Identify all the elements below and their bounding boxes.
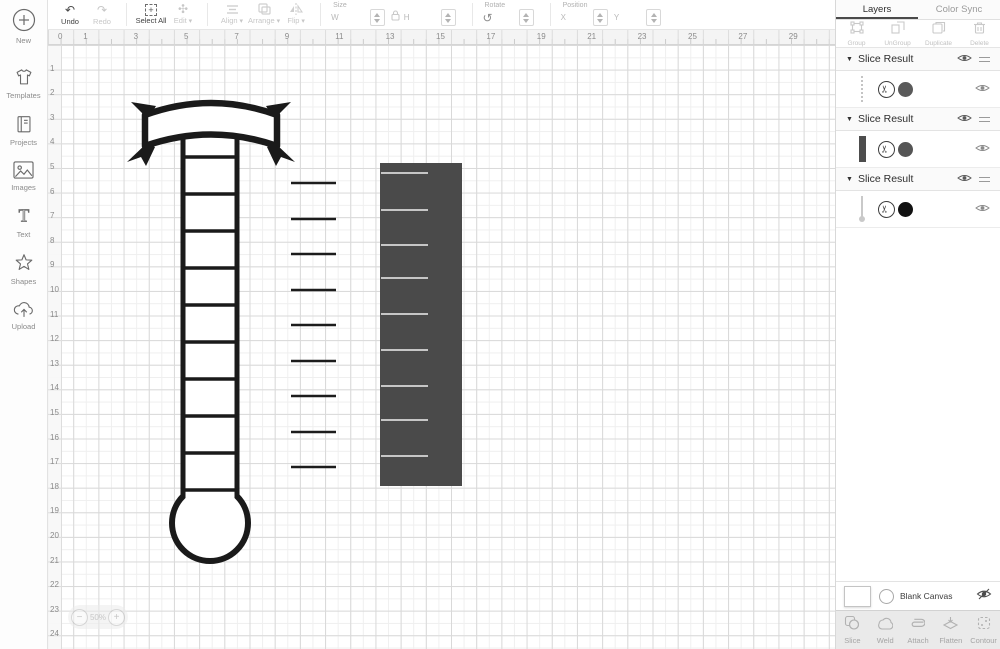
- flatten-icon: [942, 616, 959, 635]
- bottom-action-label: Contour: [970, 636, 997, 645]
- layer-row[interactable]: ✂: [836, 131, 1000, 168]
- lock-icon[interactable]: [391, 8, 400, 26]
- h-ruler-number: 23: [638, 32, 647, 41]
- v-ruler-number: 7: [50, 211, 54, 220]
- select-all-icon: +: [145, 4, 157, 16]
- bottom-action-label: Attach: [907, 636, 928, 645]
- action-label: Delete: [970, 40, 989, 47]
- h-ruler-number: 29: [789, 32, 798, 41]
- layer-group-title: Slice Result: [858, 53, 957, 65]
- group-menu-icon[interactable]: [979, 57, 990, 62]
- images-icon: [12, 160, 35, 180]
- slice-icon: [844, 615, 860, 635]
- h-ruler-number: 5: [184, 32, 188, 41]
- edit-label: Edit: [174, 17, 192, 26]
- align-dropdown[interactable]: Align: [216, 0, 248, 30]
- delete-icon: [973, 21, 986, 39]
- toolbar-divider: [550, 3, 551, 26]
- toolbar-divider: [207, 3, 208, 26]
- h-ruler-number: 9: [285, 32, 289, 41]
- zoom-control: − 50% +: [68, 605, 128, 629]
- select-all-label: Select All: [136, 17, 167, 25]
- group-visibility-eye-icon[interactable]: [957, 110, 972, 128]
- position-label: Position: [563, 2, 588, 9]
- contour-button[interactable]: Contour: [967, 611, 1000, 649]
- toolbar-divider: [320, 3, 321, 26]
- y-stepper[interactable]: [646, 9, 661, 26]
- boolean-actions-bar: SliceWeldAttachFlattenContour: [836, 610, 1000, 649]
- sidebar-item-label: Projects: [10, 138, 37, 147]
- v-ruler-number: 13: [50, 359, 59, 368]
- collapse-triangle-icon[interactable]: ▼: [846, 116, 853, 123]
- contour-icon: [977, 616, 991, 635]
- layers-panel: Layers Color Sync GroupUnGroupDuplicateD…: [835, 0, 1000, 649]
- h-ruler-number: 7: [234, 32, 238, 41]
- x-field-label: X: [561, 13, 566, 22]
- group-visibility-eye-icon[interactable]: [957, 170, 972, 188]
- templates-icon: [12, 66, 36, 88]
- design-space-app: ↶ Undo ↷ Redo + Select All ✣ Edit Align: [0, 0, 1000, 649]
- layer-visibility-eye-icon[interactable]: [975, 140, 990, 158]
- blank-canvas-row: Blank Canvas: [836, 581, 1000, 610]
- left-sidebar: NewTemplatesProjectsImagesTTextShapesUpl…: [0, 0, 48, 649]
- v-ruler-number: 19: [50, 506, 59, 515]
- slice-button[interactable]: Slice: [836, 611, 869, 649]
- h-ruler-number: 1: [83, 32, 87, 41]
- bottom-action-label: Slice: [844, 636, 860, 645]
- vertical-ruler: 123456789101112131415161718192021222324: [48, 45, 62, 649]
- text-icon: T: [13, 205, 35, 227]
- canvas-color-swatch[interactable]: [844, 586, 871, 607]
- bottom-action-label: Weld: [877, 636, 894, 645]
- sidebar-item-templates[interactable]: Templates: [0, 59, 47, 106]
- sidebar-item-label: Shapes: [11, 277, 36, 286]
- v-ruler-number: 18: [50, 482, 59, 491]
- v-ruler-number: 23: [50, 605, 59, 614]
- arrange-icon: [258, 3, 271, 17]
- h-ruler-number: 0: [58, 32, 62, 41]
- new-icon: [11, 7, 37, 33]
- v-ruler-number: 8: [50, 236, 54, 245]
- layer-group-title: Slice Result: [858, 173, 957, 185]
- layer-group-header[interactable]: ▼Slice Result: [836, 48, 1000, 71]
- v-ruler-number: 16: [50, 433, 59, 442]
- flip-label: Flip: [287, 17, 305, 26]
- h-ruler-number: 11: [335, 32, 343, 41]
- h-ruler-number: 13: [386, 32, 395, 41]
- sidebar-item-label: Images: [11, 183, 36, 192]
- v-ruler-number: 21: [50, 556, 59, 565]
- layer-group-header[interactable]: ▼Slice Result: [836, 168, 1000, 191]
- v-ruler-number: 5: [50, 162, 54, 171]
- svg-text:T: T: [18, 206, 29, 226]
- group-button[interactable]: Group: [836, 20, 877, 47]
- collapse-triangle-icon[interactable]: ▼: [846, 56, 853, 63]
- h-ruler-number: 17: [486, 32, 495, 41]
- size-group: Size W H: [323, 0, 469, 29]
- v-ruler-number: 20: [50, 531, 59, 540]
- flip-icon: [289, 3, 303, 17]
- tab-color-sync[interactable]: Color Sync: [918, 0, 1000, 19]
- layer-thumbnail: [850, 136, 874, 162]
- cut-linetype-icon[interactable]: ✂: [878, 81, 895, 98]
- layer-color-dot[interactable]: [898, 202, 913, 217]
- delete-button[interactable]: Delete: [959, 20, 1000, 47]
- arrange-label: Arrange: [248, 17, 280, 26]
- weld-button[interactable]: Weld: [869, 611, 902, 649]
- design-canvas[interactable]: 123456789101112131415161718192021222324 …: [48, 45, 835, 649]
- blank-canvas-label: Blank Canvas: [900, 591, 976, 601]
- undo-button[interactable]: ↶ Undo: [54, 0, 86, 30]
- layer-thumbnail: [850, 76, 874, 102]
- ungroup-icon: [891, 21, 905, 39]
- horizontal-ruler: 01357911131517192123252729: [48, 30, 835, 45]
- canvas-color-picker[interactable]: [879, 589, 894, 604]
- sidebar-item-label: Text: [17, 230, 31, 239]
- x-stepper[interactable]: [593, 9, 608, 26]
- canvas-shapes: [48, 45, 835, 649]
- layer-list: ▼Slice Result✂▼Slice Result✂▼Slice Resul…: [836, 48, 1000, 228]
- redo-label: Redo: [93, 18, 111, 26]
- edit-icon: ✣: [178, 3, 188, 17]
- eye-off-icon[interactable]: [976, 587, 992, 605]
- align-icon: [226, 3, 239, 17]
- weld-icon: [877, 615, 893, 635]
- h-ruler-number: 3: [134, 32, 138, 41]
- cut-linetype-icon[interactable]: ✂: [878, 201, 895, 218]
- width-field-label: W: [331, 13, 339, 22]
- rotate-icon: ↺: [483, 11, 493, 25]
- cut-linetype-icon[interactable]: ✂: [878, 141, 895, 158]
- top-toolbar: ↶ Undo ↷ Redo + Select All ✣ Edit Align: [48, 0, 835, 30]
- v-ruler-number: 10: [50, 285, 59, 294]
- zoom-out-button[interactable]: −: [71, 609, 88, 626]
- projects-icon: [13, 113, 35, 135]
- layer-group-title: Slice Result: [858, 113, 957, 125]
- v-ruler-number: 4: [50, 137, 54, 146]
- sidebar-item-images[interactable]: Images: [0, 153, 47, 198]
- layer-actions-bar: GroupUnGroupDuplicateDelete: [836, 20, 1000, 48]
- ungroup-button[interactable]: UnGroup: [877, 20, 918, 47]
- group-menu-icon[interactable]: [979, 177, 990, 182]
- redo-button[interactable]: ↷ Redo: [86, 0, 118, 30]
- h-ruler-number: 15: [436, 32, 445, 41]
- arrange-dropdown[interactable]: Arrange: [248, 0, 280, 30]
- zoom-level: 50%: [90, 613, 106, 622]
- h-ruler-number: 27: [738, 32, 747, 41]
- panel-tabs: Layers Color Sync: [836, 0, 1000, 20]
- v-ruler-number: 15: [50, 408, 59, 417]
- layer-row[interactable]: ✂: [836, 191, 1000, 228]
- attach-icon: [910, 615, 925, 635]
- v-ruler-number: 22: [50, 580, 59, 589]
- rotate-label: Rotate: [485, 2, 506, 9]
- toolbar-divider: [472, 3, 473, 26]
- zoom-in-button[interactable]: +: [108, 609, 125, 626]
- thermometer-shape[interactable]: [127, 102, 295, 561]
- sidebar-item-projects[interactable]: Projects: [0, 106, 47, 153]
- sidebar-item-label: Upload: [12, 322, 36, 331]
- h-ruler-number: 25: [688, 32, 697, 41]
- action-label: Duplicate: [925, 40, 952, 47]
- v-ruler-number: 14: [50, 383, 59, 392]
- bottom-action-label: Flatten: [939, 636, 962, 645]
- undo-icon: ↶: [65, 4, 75, 18]
- redo-icon: ↷: [97, 4, 107, 18]
- width-stepper[interactable]: [370, 9, 385, 26]
- h-ruler-number: 19: [537, 32, 546, 41]
- layer-visibility-eye-icon[interactable]: [975, 200, 990, 218]
- v-ruler-number: 9: [50, 260, 54, 269]
- rotate-group: Rotate ↺: [475, 0, 548, 29]
- sidebar-item-upload[interactable]: Upload: [0, 292, 47, 337]
- flatten-button[interactable]: Flatten: [934, 611, 967, 649]
- sidebar-item-shapes[interactable]: Shapes: [0, 245, 47, 292]
- sidebar-item-label: Templates: [6, 91, 40, 100]
- action-label: Group: [847, 40, 865, 47]
- select-all-button[interactable]: + Select All: [135, 0, 167, 30]
- layer-row[interactable]: ✂: [836, 71, 1000, 108]
- sidebar-item-new[interactable]: New: [0, 0, 47, 51]
- v-ruler-number: 12: [50, 334, 59, 343]
- group-visibility-eye-icon[interactable]: [957, 50, 972, 68]
- rotate-stepper[interactable]: [519, 9, 534, 26]
- v-ruler-number: 17: [50, 457, 59, 466]
- sidebar-item-text[interactable]: TText: [0, 198, 47, 245]
- v-ruler-number: 6: [50, 187, 54, 196]
- layer-color-dot[interactable]: [898, 82, 913, 97]
- height-field-label: H: [404, 13, 410, 22]
- toolbar-divider: [126, 3, 127, 26]
- layer-thumbnail: [850, 196, 874, 222]
- action-label: UnGroup: [884, 40, 910, 47]
- undo-label: Undo: [61, 18, 79, 26]
- group-icon: [850, 21, 864, 39]
- layer-visibility-eye-icon[interactable]: [975, 80, 990, 98]
- collapse-triangle-icon[interactable]: ▼: [846, 176, 853, 183]
- edit-dropdown[interactable]: ✣ Edit: [167, 0, 199, 30]
- position-group: Position X Y: [553, 0, 676, 29]
- duplicate-button[interactable]: Duplicate: [918, 20, 959, 47]
- duplicate-icon: [932, 21, 946, 39]
- size-label: Size: [333, 2, 347, 9]
- slice-rectangle-shape[interactable]: [380, 163, 462, 486]
- v-ruler-number: 24: [50, 629, 59, 638]
- v-ruler-number: 11: [50, 310, 58, 319]
- shapes-icon: [13, 252, 35, 274]
- v-ruler-number: 1: [50, 64, 54, 73]
- sidebar-item-label: New: [16, 36, 31, 45]
- y-field-label: Y: [614, 13, 619, 22]
- layer-group-header[interactable]: ▼Slice Result: [836, 108, 1000, 131]
- tab-layers[interactable]: Layers: [836, 0, 918, 19]
- height-stepper[interactable]: [441, 9, 456, 26]
- tick-lines-shape[interactable]: [291, 183, 336, 467]
- group-menu-icon[interactable]: [979, 117, 990, 122]
- flip-dropdown[interactable]: Flip: [280, 0, 312, 30]
- layer-color-dot[interactable]: [898, 142, 913, 157]
- v-ruler-number: 3: [50, 113, 54, 122]
- v-ruler-number: 2: [50, 88, 54, 97]
- attach-button[interactable]: Attach: [902, 611, 935, 649]
- upload-icon: [12, 299, 36, 319]
- h-ruler-number: 21: [587, 32, 596, 41]
- align-label: Align: [221, 17, 243, 26]
